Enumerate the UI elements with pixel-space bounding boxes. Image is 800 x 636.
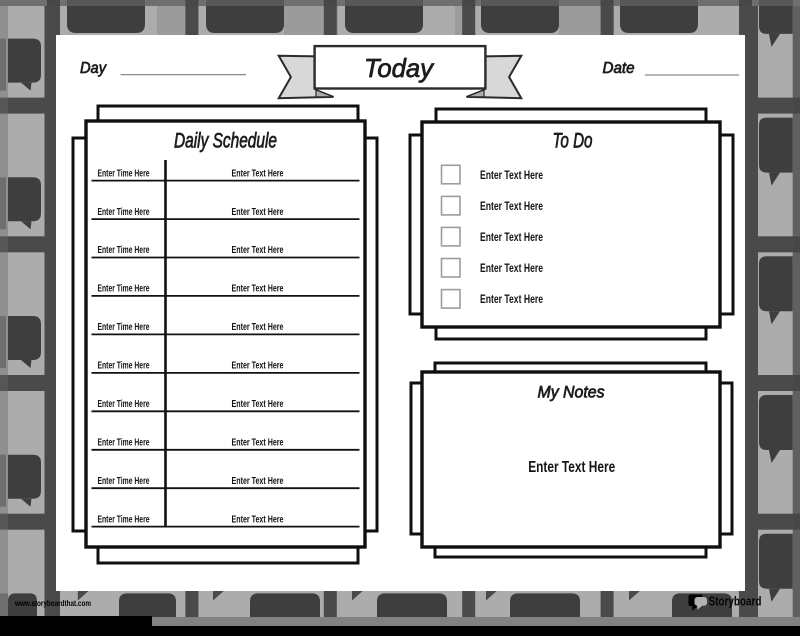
svg-text:Enter Text Here: Enter Text Here	[232, 476, 284, 487]
svg-text:Enter Time Here: Enter Time Here	[98, 361, 150, 372]
svg-text:To Do: To Do	[553, 130, 593, 153]
svg-text:Enter Text Here: Enter Text Here	[480, 201, 543, 213]
svg-text:Enter Text Here: Enter Text Here	[232, 437, 284, 448]
svg-text:Enter Text Here: Enter Text Here	[232, 245, 284, 256]
svg-text:Enter Text Here: Enter Text Here	[232, 207, 284, 218]
svg-text:Enter Time Here: Enter Time Here	[98, 399, 150, 410]
svg-text:My Notes: My Notes	[538, 383, 605, 402]
svg-text:Enter Time Here: Enter Time Here	[98, 514, 150, 525]
svg-text:Enter Text Here: Enter Text Here	[232, 168, 284, 179]
svg-text:Day: Day	[80, 60, 107, 77]
svg-text:Enter Text Here: Enter Text Here	[480, 232, 543, 244]
svg-text:Enter Text Here: Enter Text Here	[232, 399, 284, 410]
svg-text:Enter Text Here: Enter Text Here	[480, 170, 543, 182]
svg-text:Enter Text Here: Enter Text Here	[232, 322, 284, 333]
svg-text:Enter Time Here: Enter Time Here	[98, 476, 150, 487]
svg-text:Enter Time Here: Enter Time Here	[98, 322, 150, 333]
svg-text:Enter Text Here: Enter Text Here	[232, 284, 284, 295]
svg-text:Enter Text Here: Enter Text Here	[480, 294, 543, 306]
svg-text:www.storyboardthat.com: www.storyboardthat.com	[14, 599, 91, 608]
svg-text:Enter Time Here: Enter Time Here	[98, 437, 150, 448]
svg-text:Enter Time Here: Enter Time Here	[98, 245, 150, 256]
svg-text:Enter Text Here: Enter Text Here	[232, 361, 284, 372]
svg-text:Enter Time Here: Enter Time Here	[98, 284, 150, 295]
svg-text:Date: Date	[603, 60, 635, 77]
svg-text:Storyboard: Storyboard	[709, 594, 762, 608]
svg-text:Daily Schedule: Daily Schedule	[174, 130, 277, 153]
svg-text:Enter Time Here: Enter Time Here	[98, 168, 150, 179]
svg-text:Enter Text Here: Enter Text Here	[480, 263, 543, 275]
svg-text:Today: Today	[364, 53, 435, 83]
svg-text:Enter Text Here: Enter Text Here	[232, 514, 284, 525]
svg-text:Enter Text Here: Enter Text Here	[528, 459, 615, 476]
svg-text:Enter Time Here: Enter Time Here	[98, 207, 150, 218]
